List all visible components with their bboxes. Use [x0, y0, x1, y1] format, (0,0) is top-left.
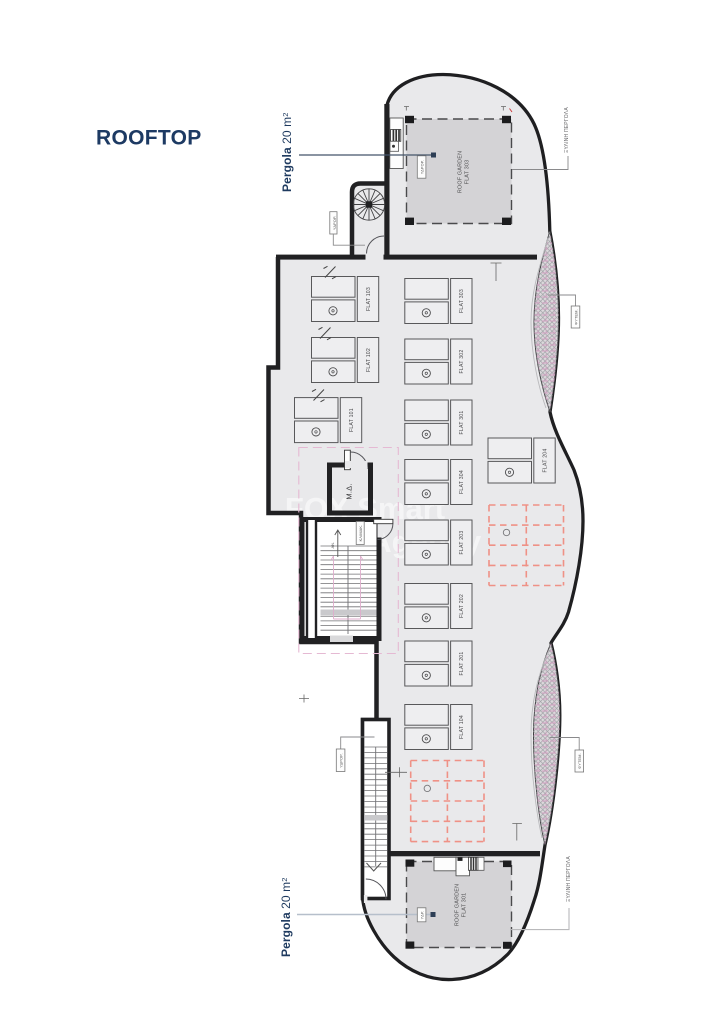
svg-text:ΦΥΤΕΜ.: ΦΥΤΕΜ. [578, 753, 582, 769]
svg-text:ΞΥΛΙΝΗ ΠΕΡΓΟΛΑ: ΞΥΛΙΝΗ ΠΕΡΓΟΛΑ [566, 856, 572, 902]
svg-text:Μ.Δ.: Μ.Δ. [345, 483, 354, 499]
svg-text:FLAT 303: FLAT 303 [465, 160, 471, 185]
svg-text:FLAT 101: FLAT 101 [349, 408, 355, 432]
svg-text:FLAT 304: FLAT 304 [459, 470, 465, 494]
svg-text:ΥΔΡΟΡ.: ΥΔΡΟΡ. [333, 216, 337, 231]
svg-text:FLAT 301: FLAT 301 [459, 411, 465, 435]
svg-text:ΥΔΡΟΡ.: ΥΔΡΟΡ. [340, 753, 344, 768]
svg-text:FLAT 303: FLAT 303 [459, 289, 465, 313]
svg-text:FLAT 204: FLAT 204 [542, 449, 548, 473]
svg-text:FLAT 201: FLAT 201 [459, 652, 465, 676]
svg-text:FLAT 203: FLAT 203 [459, 531, 465, 555]
svg-text:FLAT 103: FLAT 103 [366, 287, 372, 311]
svg-text:FLAT 302: FLAT 302 [459, 350, 465, 374]
svg-text:ΥΔΡ.: ΥΔΡ. [421, 911, 425, 920]
svg-text:Pergola 20 m2: Pergola 20 m2 [280, 112, 294, 192]
svg-text:FLAT 301: FLAT 301 [462, 893, 468, 918]
svg-text:FLAT 104: FLAT 104 [459, 715, 465, 739]
svg-text:FLAT 202: FLAT 202 [459, 594, 465, 618]
svg-text:ΞΥΛΙΝΗ ΠΕΡΓΟΛΑ: ΞΥΛΙΝΗ ΠΕΡΓΟΛΑ [564, 107, 570, 153]
svg-text:ROOFTOP: ROOFTOP [96, 127, 202, 150]
svg-text:ΥΔΡΟΡ.: ΥΔΡΟΡ. [421, 160, 425, 175]
svg-text:ΦΥΤΕΜ.: ΦΥΤΕΜ. [575, 309, 579, 325]
svg-text:ΑΝ.: ΑΝ. [331, 542, 335, 549]
svg-text:ΚΛΙΜΑΚ.: ΚΛΙΜΑΚ. [359, 525, 363, 542]
svg-text:Pergola 20 m2: Pergola 20 m2 [279, 877, 293, 957]
svg-text:FLAT 102: FLAT 102 [366, 348, 372, 372]
svg-text:ROOF GARDEN: ROOF GARDEN [455, 884, 461, 926]
svg-text:ROOF GARDEN: ROOF GARDEN [458, 151, 464, 193]
